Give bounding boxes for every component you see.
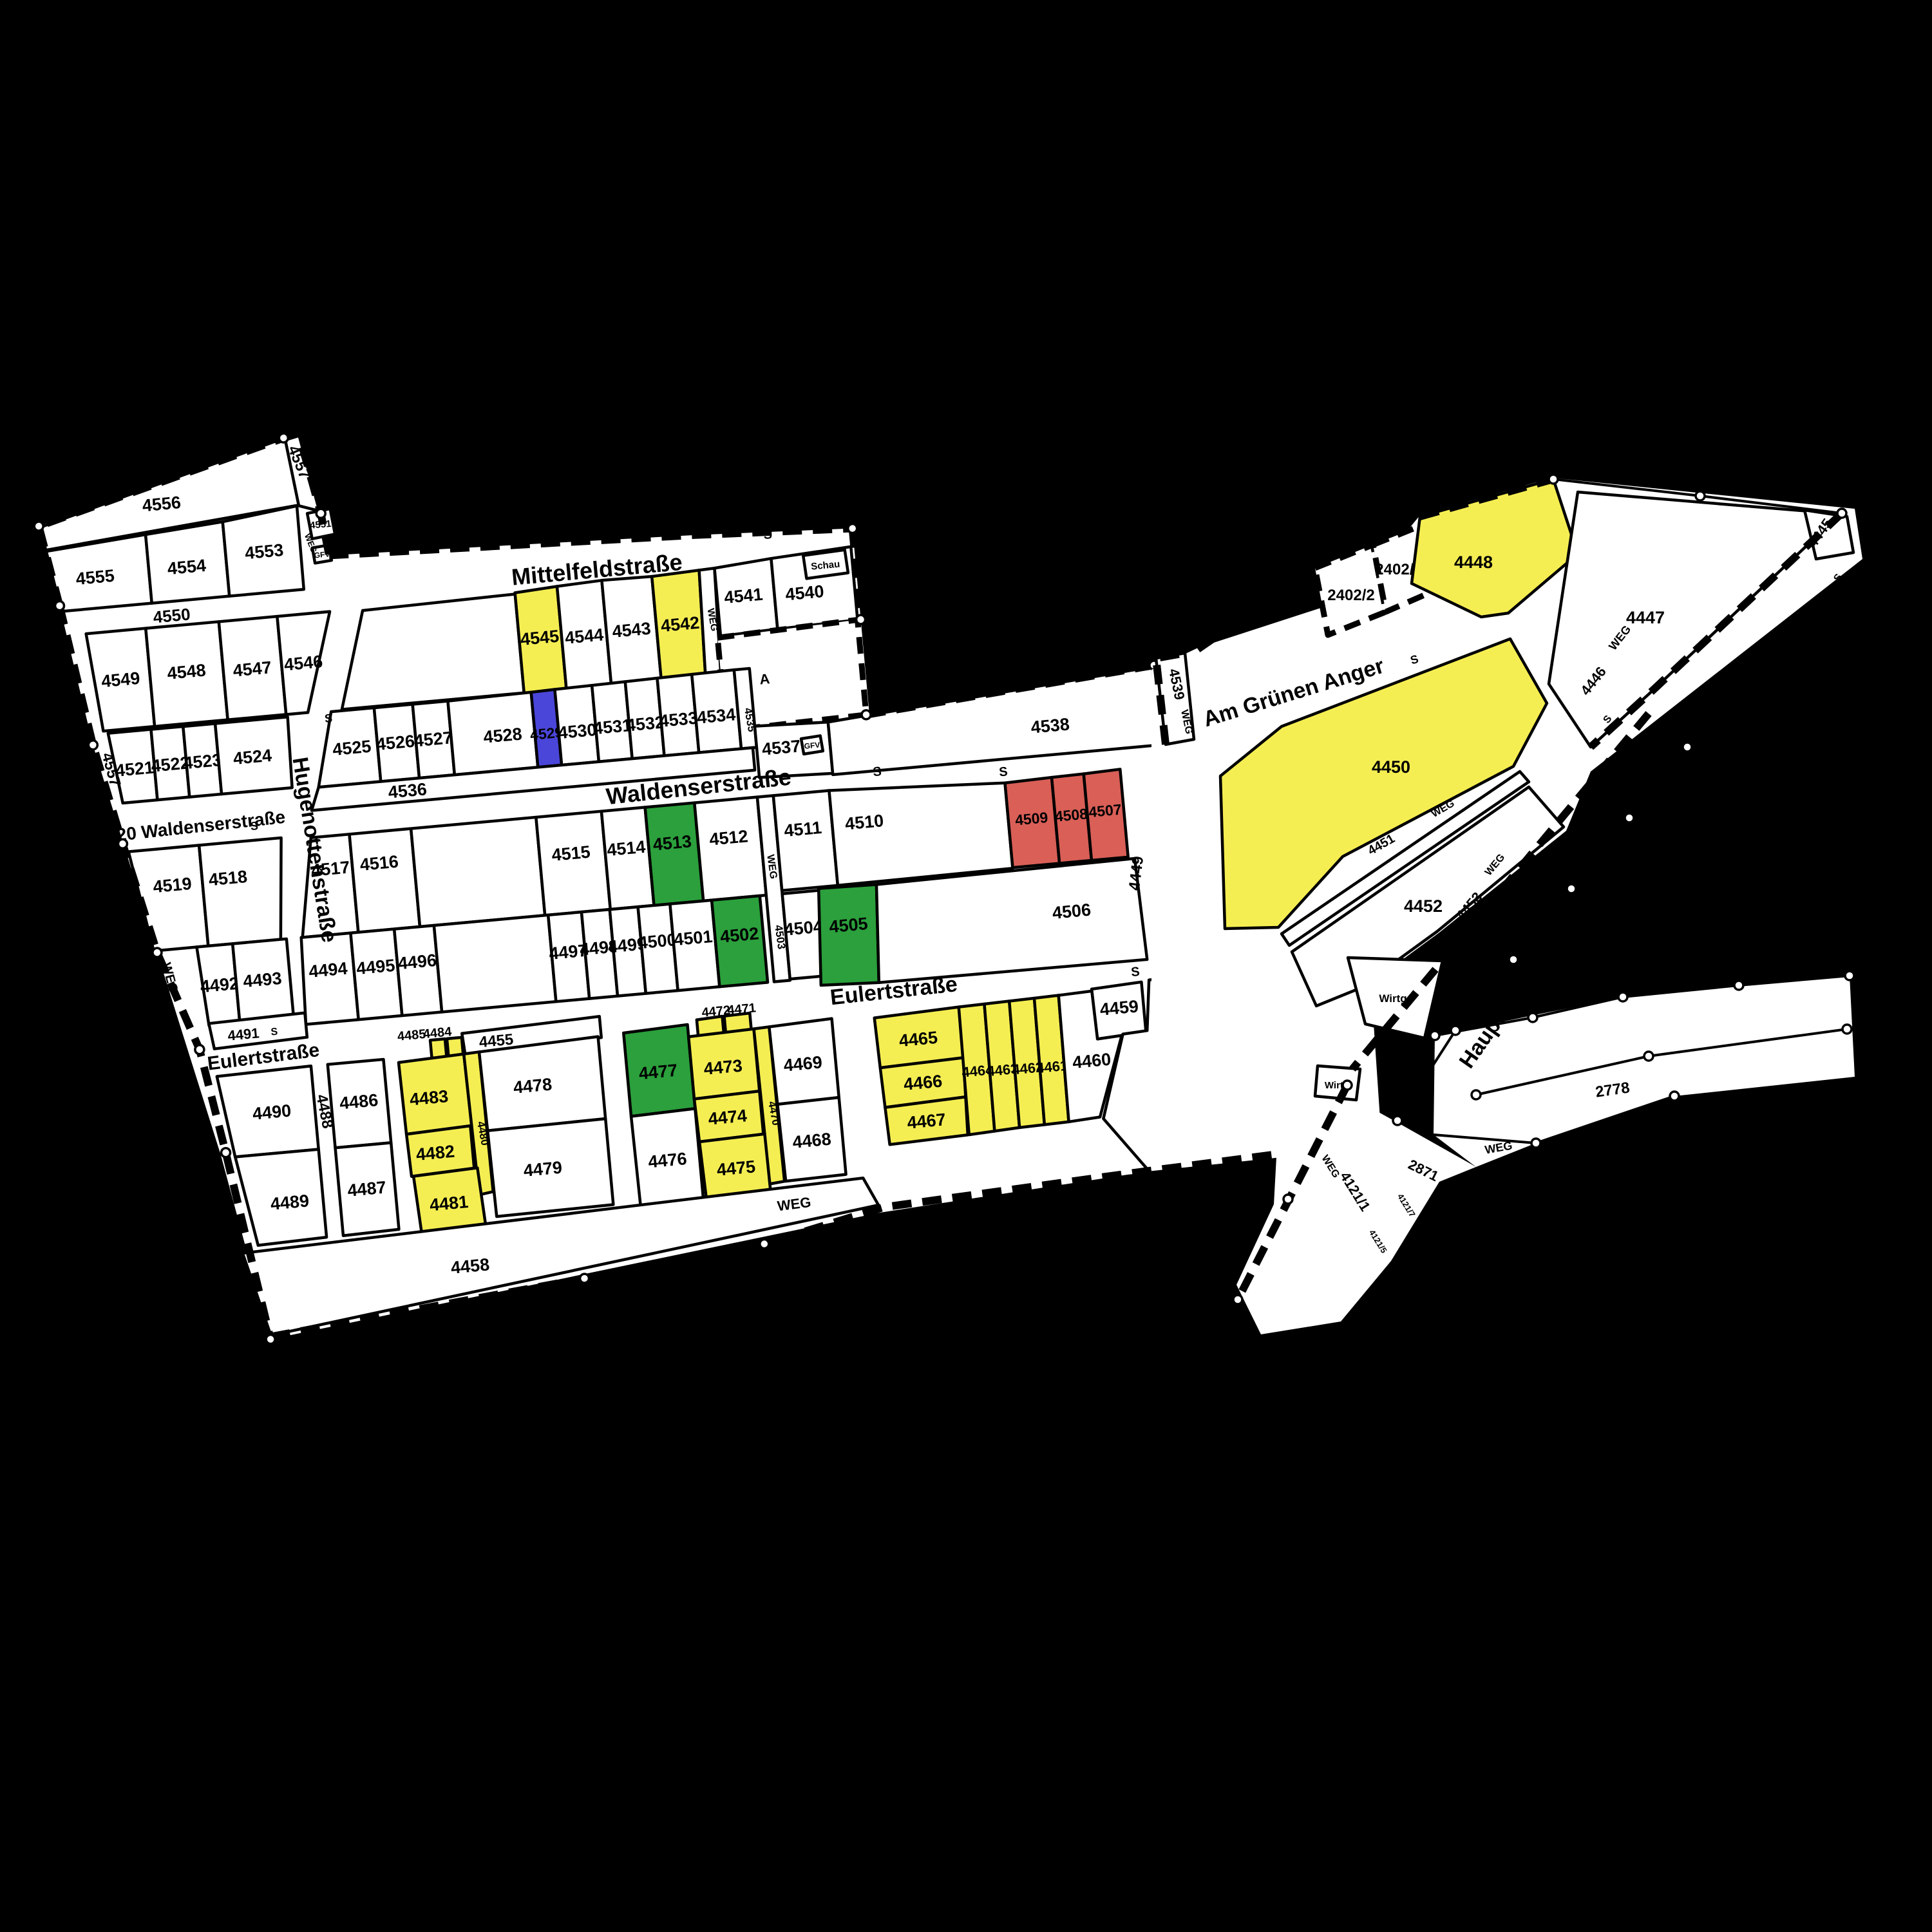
parcel-label-4486: 4486 [339, 1090, 379, 1113]
survey-point [1734, 981, 1743, 990]
survey-point [1430, 1031, 1439, 1040]
survey-point [1845, 971, 1854, 980]
parcel-label-4448: 4448 [1454, 553, 1493, 572]
survey-point [759, 1239, 769, 1249]
survey-point [34, 521, 44, 531]
parcel-label-4508: 4508 [1054, 805, 1089, 825]
parcel-label-4514: 4514 [606, 837, 647, 860]
parcel-label-4447: 4447 [1626, 608, 1665, 627]
parcel-label-4495: 4495 [355, 956, 396, 978]
survey-point [316, 509, 326, 518]
parcel-label-4546: 4546 [283, 652, 324, 674]
parcel-label-4538: 4538 [1030, 714, 1070, 737]
map-label-s: S [762, 527, 772, 542]
parcel-label-4545: 4545 [520, 627, 560, 649]
survey-point [1393, 1116, 1402, 1125]
parcel-label-4468: 4468 [791, 1130, 832, 1152]
parcel-label-4478: 4478 [513, 1074, 553, 1097]
parcel-label-4507: 4507 [1088, 801, 1122, 821]
parcel-label-4536: 4536 [387, 779, 428, 802]
survey-point [88, 740, 98, 750]
survey-point [194, 1045, 204, 1054]
parcel-label-4467: 4467 [906, 1110, 947, 1132]
survey-point [1683, 743, 1692, 752]
survey-point [856, 614, 866, 624]
survey-point [1696, 491, 1705, 500]
parcel-label-a: A [759, 670, 770, 687]
parcel-label-4533: 4533 [658, 708, 699, 731]
parcel-4505[interactable] [812, 883, 885, 987]
parcel-label-4483: 4483 [409, 1086, 450, 1109]
parcel-label-4556: 4556 [142, 493, 182, 515]
parcel-label-4476: 4476 [647, 1149, 688, 1171]
survey-point [279, 433, 289, 442]
survey-point [1283, 1195, 1293, 1204]
parcel-label-4460: 4460 [1072, 1050, 1112, 1072]
parcel-label-4548: 4548 [166, 661, 207, 683]
survey-point [861, 710, 871, 719]
parcel-label-4458: 4458 [450, 1255, 491, 1277]
parcel-label-4509: 4509 [1014, 809, 1048, 829]
parcel-label-4547: 4547 [232, 658, 272, 680]
parcel-label-4496: 4496 [397, 951, 438, 973]
parcel-area[interactable] [333, 594, 524, 709]
parcel-label-4527: 4527 [413, 728, 453, 750]
map-label-4454: 4454 [1396, 1050, 1428, 1066]
parcel-label-4490: 4490 [252, 1101, 292, 1123]
survey-point [1625, 813, 1634, 822]
survey-point [1472, 1090, 1481, 1099]
parcel-label-4481: 4481 [429, 1192, 469, 1215]
survey-point [221, 1148, 231, 1157]
map-canvas: 45564555455445534551GFV45494548454745464… [0, 0, 1932, 1932]
survey-point [152, 948, 162, 958]
parcel-label-4528: 4528 [482, 724, 523, 746]
survey-point [1567, 884, 1576, 893]
parcel-label-2402-2: 2402/2 [1327, 587, 1374, 604]
parcel-label-4534: 4534 [696, 705, 737, 727]
parcel-label-4549: 4549 [100, 668, 141, 691]
parcel-label-4489: 4489 [270, 1191, 310, 1213]
parcel-label-4526: 4526 [375, 732, 416, 754]
parcel-label-4544: 4544 [564, 625, 605, 647]
parcel-label-4482: 4482 [415, 1142, 456, 1164]
parcel-label-4541: 4541 [723, 585, 764, 607]
parcel-label-4543: 4543 [611, 619, 652, 641]
survey-point [1842, 1025, 1851, 1034]
parcel-label-4524: 4524 [232, 746, 273, 768]
parcel-4511[interactable] [773, 791, 838, 891]
parcel-label-4494: 4494 [308, 959, 348, 981]
parcel-label-4504: 4504 [783, 916, 824, 939]
survey-point [1618, 992, 1627, 1001]
parcel-label-4519: 4519 [152, 874, 193, 896]
parcel-label-4465: 4465 [898, 1028, 939, 1050]
parcel-4515[interactable] [536, 811, 610, 916]
map-label-s: S [270, 1027, 278, 1038]
map-label-s: S [872, 764, 882, 779]
map-label-27: 27 [1593, 802, 1613, 822]
parcel-label-4512: 4512 [708, 826, 749, 849]
parcel-label-4553: 4553 [244, 540, 285, 563]
map-label-s: S [1411, 1071, 1418, 1082]
map-label-4471: 4471 [727, 1001, 757, 1018]
parcel-area[interactable] [411, 817, 545, 927]
survey-point [1531, 1139, 1540, 1148]
parcel-label-4469: 4469 [782, 1052, 823, 1075]
layer-east: 2402/22402/14448444744504452WirtgWirtg45… [1126, 475, 1862, 1334]
survey-point [580, 1273, 589, 1283]
parcel-label-4554: 4554 [167, 556, 207, 578]
parcel-label-4537: 4537 [761, 736, 802, 759]
survey-point [1509, 955, 1518, 964]
map-label-4455: 4455 [478, 1031, 515, 1052]
parcel-label-4450: 4450 [1372, 757, 1410, 777]
cadastral-map: 45564555455445534551GFV45494548454745464… [0, 0, 1932, 1932]
parcel-label-4466: 4466 [903, 1072, 943, 1094]
parcel-label-4487: 4487 [346, 1177, 387, 1200]
map-label-s: S [324, 712, 333, 725]
parcel-4512[interactable] [694, 797, 766, 901]
parcel-label-4516: 4516 [359, 852, 400, 875]
parcel-label-4555: 4555 [75, 566, 115, 589]
parcel-label-4452: 4452 [1404, 896, 1443, 916]
parcel-label-gfv: GFV [804, 741, 820, 751]
parcel-4516[interactable] [350, 829, 420, 933]
survey-point [1837, 509, 1846, 518]
map-label-s: S [250, 819, 259, 833]
parcel-label-4502: 4502 [719, 923, 760, 946]
parcel-label-4473: 4473 [703, 1056, 743, 1079]
survey-point [848, 524, 857, 533]
survey-point [1528, 1013, 1537, 1022]
parcel-area[interactable] [434, 915, 556, 1012]
parcel-label-4511: 4511 [783, 818, 822, 840]
map-label-4491: 4491 [227, 1025, 260, 1043]
parcel-label-4518: 4518 [208, 867, 249, 889]
map-label-4484: 4484 [422, 1025, 453, 1041]
survey-point [1644, 1052, 1653, 1061]
parcel-label-4513: 4513 [652, 831, 693, 854]
parcel-label-4525: 4525 [332, 737, 372, 759]
parcel-label-4501: 4501 [673, 927, 714, 949]
survey-point [118, 839, 128, 849]
parcel-4447[interactable] [1549, 492, 1841, 747]
map-label-s: S [1130, 965, 1140, 980]
parcel-label-4493: 4493 [242, 969, 283, 991]
map-label-s: S [1761, 714, 1774, 726]
survey-point [55, 601, 64, 611]
parcel-label-4542: 4542 [660, 613, 701, 636]
parcel-label-4477: 4477 [638, 1061, 679, 1083]
parcel-label-4515: 4515 [551, 842, 591, 865]
survey-point [1233, 1295, 1242, 1304]
parcel-label-4540: 4540 [784, 582, 825, 604]
map-label-s: S [998, 764, 1008, 779]
parcel-label-4530: 4530 [557, 720, 598, 743]
map-label-4550: 4550 [152, 604, 191, 627]
parcel-label-4506: 4506 [1052, 900, 1092, 923]
parcel-label-4474: 4474 [707, 1106, 748, 1128]
survey-point [1343, 1081, 1352, 1090]
survey-point [1451, 1026, 1460, 1035]
survey-point [265, 1334, 275, 1344]
survey-point [1670, 1092, 1679, 1101]
parcel-4518[interactable] [199, 838, 290, 946]
survey-point [1549, 475, 1558, 484]
parcel-label-4505: 4505 [828, 914, 869, 936]
parcel-label-4479: 4479 [523, 1158, 563, 1180]
parcel-label-4510: 4510 [844, 811, 885, 833]
parcel-label-4475: 4475 [716, 1157, 757, 1179]
parcel-label-4459: 4459 [1099, 996, 1140, 1019]
parcel-label-4492: 4492 [200, 974, 240, 996]
